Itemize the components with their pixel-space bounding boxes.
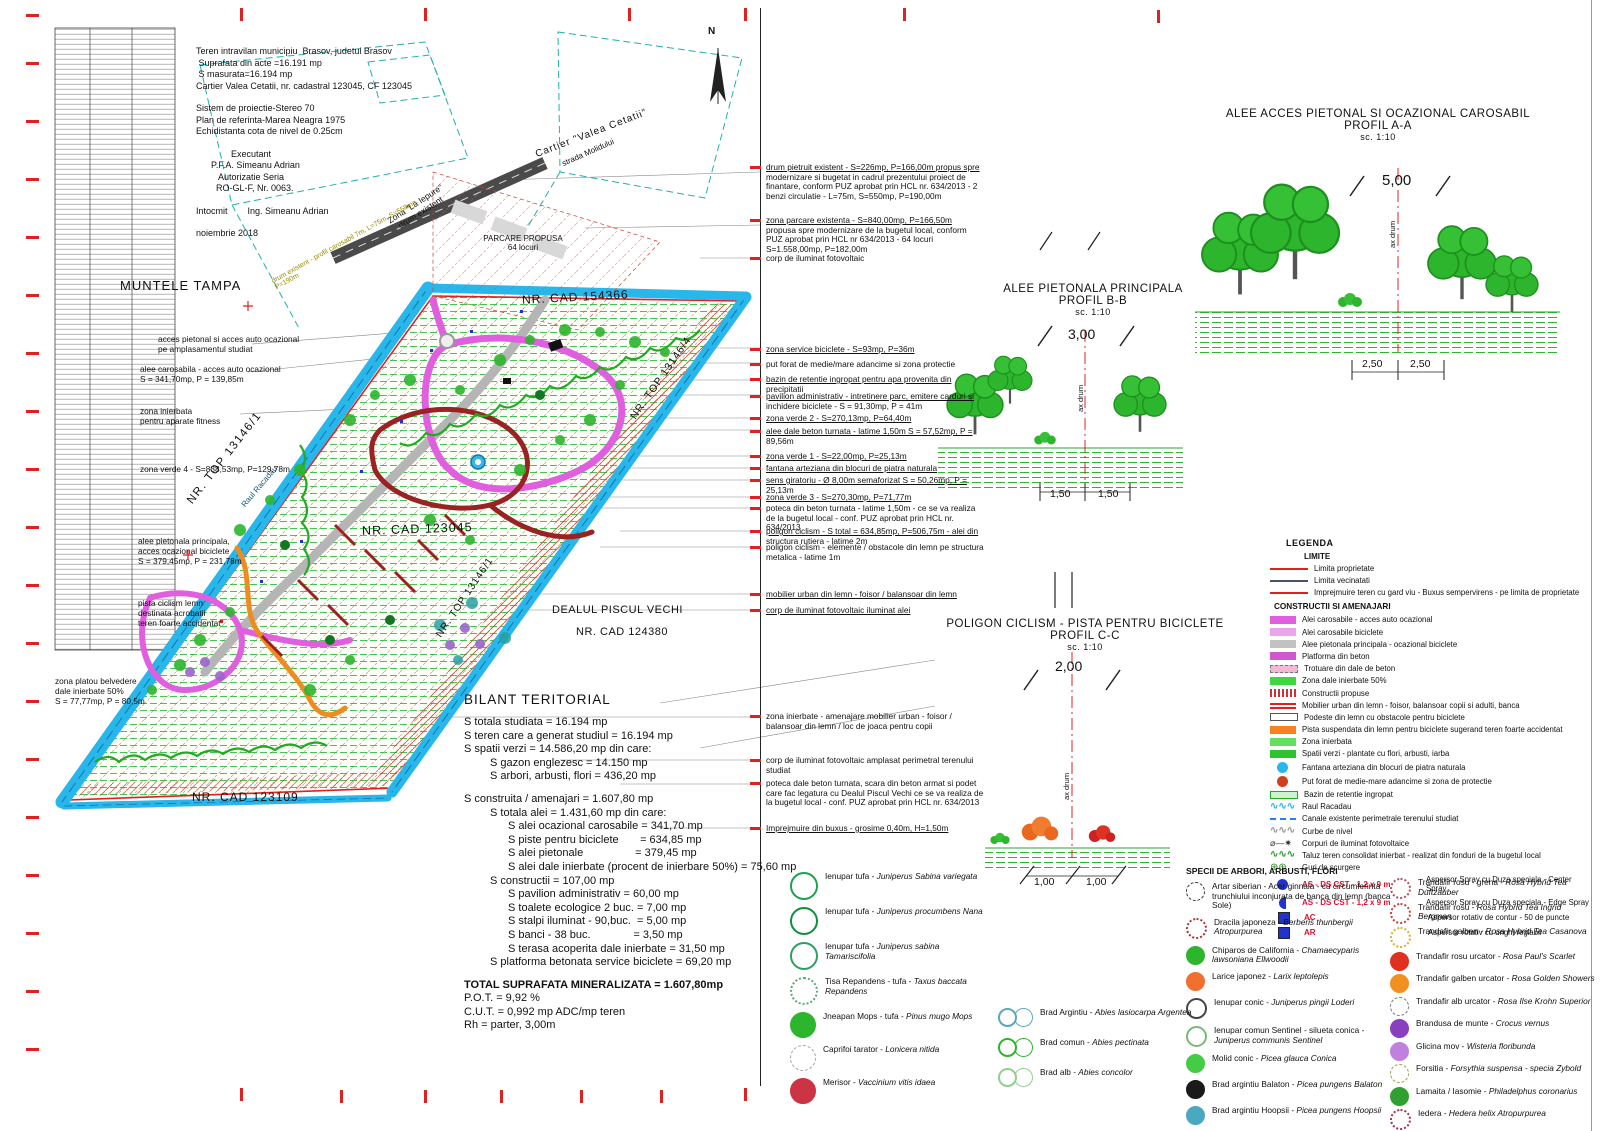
legend-swatch [1270, 713, 1298, 721]
bilant-line: S construita / amenajari = 1.607,80 mp [464, 793, 816, 807]
species-text: Brad Argintiu - Abies lasiocarpa Argente… [1040, 1008, 1191, 1018]
legend-row: Spatii verzi - plantate cu flori, arbust… [1270, 749, 1590, 758]
note-pavilion: pavilion administrativ - intretinere par… [766, 392, 984, 411]
note-fantana: fantana arteziana din blocuri de piatra … [766, 464, 984, 474]
legend-label: Constructii propuse [1302, 689, 1369, 698]
legend-label: Canale existente perimetrale terenului s… [1302, 814, 1458, 823]
species-glyph-icon [1186, 1106, 1205, 1125]
species-text: Molid conic - Picea glauca Conica [1212, 1054, 1337, 1064]
species-glyph-icon [1390, 1087, 1409, 1106]
species-row: Ienupar conic - Juniperus pingii Loderi [1186, 998, 1394, 1019]
legend-label: Zona dale inierbate 50% [1302, 676, 1387, 685]
species-text: Larice japonez - Larix leptolepis [1212, 972, 1329, 982]
legend-swatch [1270, 803, 1296, 811]
profile-cc-dim-top: 2,00 [1055, 658, 1082, 674]
label-muntele-tampa: MUNTELE TAMPA [120, 278, 241, 293]
info-line: Suprafata din acte =16.191 mp [196, 58, 486, 70]
legend-swatch [1270, 726, 1296, 734]
legend-row: Trotuare din dale de beton [1270, 664, 1590, 673]
info-line: Echidistanta cota de nivel de 0.25cm [196, 126, 486, 138]
toilets [503, 378, 511, 384]
left-label-platou-belvedere: zona platou belvedere dale inierbate 50%… [55, 676, 145, 706]
profile-aa-dim-top: 5,00 [1382, 172, 1411, 189]
bilant-line: C.U.T. = 0,992 mp ADC/mp teren [464, 1006, 816, 1020]
label-nr-cad-154366: NR. CAD 154366 [522, 287, 629, 307]
legend-row: Put forat de medie-mare adancime si zona… [1270, 776, 1590, 787]
species-glyph-icon [998, 1008, 1017, 1027]
label-nr-top-13146-4: NR. TOP 13146/4 [628, 334, 694, 421]
species-row: Larice japonez - Larix leptolepis [1186, 972, 1394, 991]
legend-swatch [1270, 689, 1296, 697]
note-zona-parcare: zona parcare existenta - S=840,00mp, P=1… [766, 216, 984, 254]
bilant-line: S gazon englezesc = 14.150 mp [490, 757, 816, 771]
species-glyph-icon [1186, 972, 1205, 991]
profile-cc-title2: PROFIL C-C [945, 630, 1225, 642]
legend-swatch [1270, 592, 1308, 594]
info-line: Cartier Valea Cetatii, nr. cadastral 123… [196, 81, 486, 93]
legend-label: Alei carosabile - acces auto ocazional [1302, 615, 1432, 624]
label-dealul-piscul-vechi: DEALUL PISCUL VECHI [552, 604, 683, 616]
note-alee-dale: alee dale beton turnata - latime 1,50m S… [766, 427, 984, 446]
left-label-alee-carosabila: alee carosabila - acces auto ocazional S… [140, 364, 281, 384]
species-text: Ienupar tufa - Juniperus sabina Tamarisc… [825, 942, 990, 961]
species-text: Ienupar conic - Juniperus pingii Loderi [1214, 998, 1354, 1008]
species-glyph-icon [1390, 1064, 1409, 1083]
species-row: Brad comun - Abies pectinata [998, 1038, 1198, 1057]
bilant-line: S constructii = 107,00 mp [490, 875, 816, 889]
legend-label: Alee pietonala principala - ocazional bi… [1302, 640, 1457, 649]
info-line: Executant [196, 149, 486, 161]
species-glyph-icon [1390, 1042, 1409, 1061]
pavilion [548, 339, 563, 352]
legend-label: Bazin de retentie ingropat [1304, 790, 1393, 799]
bilant-line: S spatii verzi = 14.586,20 mp din care: [464, 743, 816, 757]
bilant-line: S alei pietonale = 379,45 mp [508, 847, 816, 861]
site-plan-sheet: Teren intravilan municipiu Brasov, judet… [0, 0, 1600, 1131]
note-zona-verde-2: zona verde 2 - S=270,13mp, P=64,40m [766, 414, 984, 424]
note-zona-verde-3: zona verde 3 - S=270,30mp, P=71,77m [766, 493, 984, 503]
species-row: Artar siberian - Acer ginnala - cu circu… [1186, 882, 1394, 911]
note-poligon-obstacole: poligon ciclism - elemente / obstacole d… [766, 543, 984, 562]
species-row: Trandafir galben urcator - Rosa Golden S… [1390, 974, 1596, 993]
roundabout [440, 334, 454, 348]
profile-bb-title2: PROFIL B-B [958, 295, 1228, 307]
species-text: Forsitia - Forsythia suspensa - specia Z… [1416, 1064, 1581, 1074]
profile-cc-dim-left: 1,00 [1034, 876, 1054, 888]
legend-row: Mobilier urban din lemn - foisor, balans… [1270, 701, 1590, 710]
species-text: Glicina mov - Wisteria floribunda [1416, 1042, 1535, 1052]
info-line: Intocmit Ing. Simeanu Adrian [196, 206, 486, 218]
species-text: Trandafir alb urcator - Rosa Ilse Krohn … [1416, 997, 1590, 1007]
legend-label: Imprejmuire teren cu gard viu - Buxus se… [1314, 588, 1579, 597]
profile-aa-title2: PROFIL A-A [1178, 120, 1578, 132]
species-glyph-icon [1390, 878, 1411, 899]
left-label-acces: acces pietonal si acces auto ocazional p… [158, 334, 299, 354]
species-text: Trandafir rosu - Rosa Hybrid Tea Ingrid … [1418, 903, 1596, 922]
species-text: Brad argintiu Hoopsii - Picea pungens Ho… [1212, 1106, 1381, 1116]
label-nr-cad-124380: NR. CAD 124380 [576, 626, 668, 638]
species-glyph-icon [790, 942, 818, 970]
legend-label: Curbe de nivel [1302, 827, 1352, 836]
legend-swatch [1270, 652, 1296, 660]
species-text: Brad argintiu Balaton - Picea pungens Ba… [1212, 1080, 1382, 1090]
bilant-teritorial: BILANT TERITORIAL S totala studiata = 16… [464, 692, 816, 1033]
legend-row: Corpuri de iluminat fotovoltaice [1270, 839, 1590, 848]
legend-swatch [1270, 738, 1296, 746]
legend-swatch [1270, 839, 1296, 847]
legend-row: Zona dale inierbate 50% [1270, 676, 1590, 685]
species-text: Merisor - Vaccinium vitis idaea [823, 1078, 935, 1088]
profile-aa-drawing [1195, 168, 1560, 380]
profile-cc-title: POLIGON CICLISM - PISTA PENTRU BICICLETE… [945, 618, 1225, 652]
species-text: Ienupar comun Sentinel - silueta conica … [1214, 1026, 1394, 1045]
label-nr-cad-123109: NR. CAD 123109 [192, 790, 299, 804]
info-line: P.F.A. Simeanu Adrian [196, 160, 486, 172]
species-text: Iedera - Hedera helix Atropurpurea [1418, 1109, 1546, 1119]
legend-label: Raul Racadau [1302, 802, 1351, 811]
left-label-alee-pietonala: alee pietonala principala, acces ocazion… [138, 536, 242, 566]
bilant-line: S banci - 38 buc. = 3,50 mp [508, 929, 816, 943]
species-text: Dracila japoneza - Berberis thunbergii A… [1214, 918, 1394, 937]
legend-swatch [1270, 628, 1296, 636]
legend-row: Platforma din beton [1270, 652, 1590, 661]
species-text: Ienupar tufa - Juniperus Sabina variegat… [825, 872, 977, 882]
species-text: Caprifoi tarator - Lonicera nitida [823, 1045, 939, 1055]
fountain [471, 455, 485, 469]
species-row: Trandafir rosu - Rosa Hybrid Tea Ingrid … [1390, 903, 1596, 924]
species-row: Ienupar tufa - Juniperus Sabina variegat… [790, 872, 990, 900]
legend-swatch [1270, 616, 1296, 624]
info-line: Plan de referinta-Marea Neagra 1975 [196, 115, 486, 127]
species-row: Brad argintiu Balaton - Picea pungens Ba… [1186, 1080, 1394, 1099]
bilant-title: BILANT TERITORIAL [464, 692, 816, 707]
legend-row: Curbe de nivel [1270, 827, 1590, 836]
species-glyph-icon [790, 907, 818, 935]
note-mobilier-urban: mobilier urban din lemn - foisor / balan… [766, 590, 984, 600]
species-text: Trandafir galben urcator - Rosa Golden S… [1416, 974, 1595, 984]
species-row: Brandusa de munte - Crocus vernus [1390, 1019, 1596, 1038]
info-line: S masurata=16.194 mp [196, 69, 486, 81]
bilant-line: TOTAL SUPRAFATA MINERALIZATA = 1.607,80m… [464, 979, 816, 993]
species-glyph-icon [1390, 1109, 1411, 1130]
species-glyph-icon [790, 1045, 816, 1071]
species-row: Trandafir alb urcator - Rosa Ilse Krohn … [1390, 997, 1596, 1016]
legend-label: Trotuare din dale de beton [1304, 664, 1395, 673]
species-row: Dracila japoneza - Berberis thunbergii A… [1186, 918, 1394, 939]
left-label-zona-fitness: zona inierbata pentru aparate fitness [140, 406, 220, 426]
species-glyph-icon [790, 1012, 816, 1038]
species-text: Jneapan Mops - tufa - Pinus mugo Mops [823, 1012, 972, 1022]
species-row: Trandafir rosu - grena - Rosa Hybrid Tea… [1390, 878, 1596, 899]
legend-row: Bazin de retentie ingropat [1270, 790, 1590, 799]
species-row: Ienupar comun Sentinel - silueta conica … [1186, 1026, 1394, 1047]
north-arrow-icon [710, 48, 726, 104]
legend-label: Podeste din lemn cu obstacole pentru bic… [1304, 713, 1465, 722]
legend-row: Fantana arteziana din blocuri de piatra … [1270, 762, 1590, 773]
species-row: Trandafir rosu urcator - Rosa Paul's Sca… [1390, 952, 1596, 971]
species-row: Brad Argintiu - Abies lasiocarpa Argente… [998, 1008, 1198, 1027]
species-row: Brad argintiu Hoopsii - Picea pungens Ho… [1186, 1106, 1394, 1125]
info-line: noiembrie 2018 [196, 228, 486, 240]
note-zona-service: zona service biciclete - S=93mp, P=36m [766, 345, 984, 355]
legend-swatch [1270, 580, 1308, 582]
legend-row: Alei carosabile - acces auto ocazional [1270, 615, 1590, 624]
info-line [196, 138, 486, 149]
species-title: SPECII DE ARBORI, ARBUSTI, FLORI [1186, 866, 1338, 876]
legend-row: Raul Racadau [1270, 802, 1590, 811]
profile-cc-title1: POLIGON CICLISM - PISTA PENTRU BICICLETE [945, 618, 1225, 630]
profile-cc-axis: ax drum [1062, 773, 1071, 800]
species-glyph-icon [1390, 997, 1409, 1016]
bilant-line: S toalete ecologice 2 buc. = 7,00 mp [508, 902, 816, 916]
species-text: Brad alb - Abies concolor [1040, 1068, 1133, 1078]
bilant-line: S alei ocazional carosabile = 341,70 mp [508, 820, 816, 834]
species-row: Tisa Repandens - tufa - Taxus baccata Re… [790, 977, 990, 1005]
alleys [142, 300, 622, 715]
species-glyph-icon [1186, 946, 1205, 965]
legend-swatch [1270, 827, 1296, 835]
species-glyph-icon [790, 977, 818, 1005]
legend-swatch [1277, 776, 1288, 787]
bilant-line: S stalpi iluminat - 90,buc. = 5,00 mp [508, 915, 816, 929]
species-glyph-icon [1390, 903, 1411, 924]
species-row: Ienupar tufa - Juniperus sabina Tamarisc… [790, 942, 990, 970]
legend-swatch [1270, 818, 1296, 820]
species-row: Trandafir galben - Rosa Hybrid Tea Casan… [1390, 927, 1596, 948]
bilant-line: Rh = parter, 3,00m [464, 1019, 816, 1033]
species-shrubs-left: Ienupar tufa - Juniperus Sabina variegat… [790, 872, 990, 1111]
left-label-pista-ciclism: pista ciclism lemn destinata acrobatii t… [138, 598, 221, 628]
species-text: Brad comun - Abies pectinata [1040, 1038, 1149, 1048]
profile-bb-dim-left: 1,50 [1050, 488, 1070, 500]
label-parcare-propusa: PARCARE PROPUSA 64 locuri [478, 234, 568, 252]
legend-constructii-title: CONSTRUCTII SI AMENAJARI [1274, 602, 1590, 611]
species-glyph-icon [1390, 952, 1409, 971]
legend-swatch [1270, 851, 1296, 859]
legend-row: Pista suspendata din lemn pentru bicicle… [1270, 725, 1590, 734]
profile-aa-dim-left: 2,50 [1362, 358, 1382, 370]
bilant-line: S teren care a generat studiul = 16.194 … [464, 730, 816, 744]
legend-limite-title: LIMITE [1304, 552, 1590, 561]
info-line: Autorizatie Seria [196, 172, 486, 184]
bilant-line: S pavilion administrativ = 60,00 mp [508, 888, 816, 902]
legend-label: Pista suspendata din lemn pentru bicicle… [1302, 725, 1563, 734]
legend-label: Platforma din beton [1302, 652, 1370, 661]
species-row: Glicina mov - Wisteria floribunda [1390, 1042, 1596, 1061]
legend-row: Podeste din lemn cu obstacole pentru bic… [1270, 713, 1590, 722]
info-line: Sistem de proiectie-Stereo 70 [196, 103, 486, 115]
profile-aa-dim-right: 2,50 [1410, 358, 1430, 370]
species-glyph-icon [998, 1038, 1017, 1057]
species-firs-center: Brad Argintiu - Abies lasiocarpa Argente… [998, 1008, 1198, 1098]
legend-label: Put forat de medie-mare adancime si zona… [1302, 777, 1492, 786]
profile-cc-scale: sc. 1:10 [945, 642, 1225, 652]
profile-bb-axis: ax drum [1076, 385, 1085, 412]
profile-aa-title1: ALEE ACCES PIETONAL SI OCAZIONAL CAROSAB… [1178, 108, 1578, 120]
bilant-line: S totala alei = 1.431,60 mp din care: [490, 807, 816, 821]
species-text: Ienupar tufa - Juniperus procumbens Nana [825, 907, 983, 917]
species-glyph-icon [790, 1078, 816, 1104]
species-text: Lamaita / Iasomie - Philadelphus coronar… [1416, 1087, 1577, 1097]
cadastral-info-block: Teren intravilan municipiu Brasov, judet… [196, 46, 486, 240]
profile-cc-dim-right: 1,00 [1086, 876, 1106, 888]
left-label-zona-verde-4: zona verde 4 - S=838,53mp, P=129,78m [140, 464, 290, 474]
species-glyph-icon [1186, 918, 1207, 939]
legend-label: Limita vecinatati [1314, 576, 1370, 585]
species-flowers-right: Trandafir rosu - grena - Rosa Hybrid Tea… [1390, 878, 1596, 1131]
info-line: Teren intravilan municipiu Brasov, judet… [196, 46, 486, 58]
species-glyph-icon [998, 1068, 1017, 1087]
species-row: Ienupar tufa - Juniperus procumbens Nana [790, 907, 990, 935]
legend-limite-row: Imprejmuire teren cu gard viu - Buxus se… [1270, 588, 1590, 597]
legend-label: Mobilier urban din lemn - foisor, balans… [1302, 701, 1520, 710]
species-text: Trandafir rosu urcator - Rosa Paul's Sca… [1416, 952, 1575, 962]
profile-aa-scale: sc. 1:10 [1178, 132, 1578, 142]
legend-swatch [1277, 762, 1288, 773]
species-row: Chiparos de California - Chamaecyparis l… [1186, 946, 1394, 965]
profile-bb-title1: ALEE PIETONALA PRINCIPALA [958, 283, 1228, 295]
legend-label: Corpuri de iluminat fotovoltaice [1302, 839, 1409, 848]
legend-label: Spatii verzi - plantate cu flori, arbust… [1302, 749, 1449, 758]
note-corp-iluminat: corp de iluminat fotovoltaic [766, 254, 984, 264]
profile-bb-dim-right: 1,50 [1098, 488, 1118, 500]
legend-swatch [1270, 750, 1296, 758]
legend-label: Taluz teren consolidat inierbat - realiz… [1302, 851, 1541, 860]
bilant-line: S piste pentru biciclete = 634,85 mp [508, 834, 816, 848]
bilant-line: S arbori, arbusti, flori = 436,20 mp [490, 770, 816, 784]
legend-swatch [1270, 640, 1296, 648]
species-row: Merisor - Vaccinium vitis idaea [790, 1078, 990, 1104]
legend-limite-row: Limita proprietate [1270, 564, 1590, 573]
species-trees-main: Artar siberian - Acer ginnala - cu circu… [1186, 882, 1394, 1131]
info-line [196, 92, 486, 103]
bilant-line: S platforma betonata service biciclete =… [490, 956, 816, 970]
legend-swatch [1270, 568, 1308, 570]
legend-label: Zona inierbata [1302, 737, 1352, 746]
note-zona-verde-1: zona verde 1 - S=22,00mp, P=25,13m [766, 452, 984, 462]
species-text: Chiparos de California - Chamaecyparis l… [1212, 946, 1394, 965]
legend-title: LEGENDA [1286, 538, 1590, 548]
legend-label: Limita proprietate [1314, 564, 1374, 573]
species-row: Jneapan Mops - tufa - Pinus mugo Mops [790, 1012, 990, 1038]
species-text: Artar siberian - Acer ginnala - cu circu… [1212, 882, 1394, 911]
label-nr-cad-123045: NR. CAD 123045 [362, 520, 473, 538]
legend-row: Constructii propuse [1270, 689, 1590, 698]
bilant-line: S terasa acoperita dale inierbate = 31,5… [508, 943, 816, 957]
legend-row: Alee pietonala principala - ocazional bi… [1270, 640, 1590, 649]
legend-row: Taluz teren consolidat inierbat - realiz… [1270, 851, 1590, 860]
species-row: Iedera - Hedera helix Atropurpurea [1390, 1109, 1596, 1130]
legend-swatch [1270, 665, 1298, 673]
species-row: Forsitia - Forsythia suspensa - specia Z… [1390, 1064, 1596, 1083]
species-row: Lamaita / Iasomie - Philadelphus coronar… [1390, 1087, 1596, 1106]
profile-aa-title: ALEE ACCES PIETONAL SI OCAZIONAL CAROSAB… [1178, 108, 1578, 142]
profile-bb-scale: sc. 1:10 [958, 307, 1228, 317]
bilant-line: S alei dale inierbate (procent de inierb… [508, 861, 816, 875]
species-text: Trandafir galben - Rosa Hybrid Tea Casan… [1418, 927, 1587, 937]
legend-swatch [1270, 701, 1296, 709]
species-row: Brad alb - Abies concolor [998, 1068, 1198, 1087]
profile-aa-axis: ax drum [1388, 221, 1397, 248]
bilant-line: P.O.T. = 9,92 % [464, 992, 816, 1006]
species-text: Tisa Repandens - tufa - Taxus baccata Re… [825, 977, 990, 996]
label-north: N [708, 26, 715, 37]
species-glyph-icon [1390, 974, 1409, 993]
species-glyph-icon [1186, 882, 1205, 901]
species-glyph-icon [790, 872, 818, 900]
species-text: Trandafir rosu - grena - Rosa Hybrid Tea… [1418, 878, 1596, 897]
legend-row: Zona inierbata [1270, 737, 1590, 746]
legend-row: Alei carosabile biciclete [1270, 628, 1590, 637]
legend-label: Fantana arteziana din blocuri de piatra … [1302, 763, 1465, 772]
info-line [196, 217, 486, 228]
note-drum-pietruit: drum pietruit existent - S=226mp, P=166,… [766, 163, 984, 201]
legend-row: Canale existente perimetrale terenului s… [1270, 814, 1590, 823]
legend-label: Alei carosabile biciclete [1302, 628, 1383, 637]
species-glyph-icon [1390, 1019, 1409, 1038]
species-glyph-icon [1390, 927, 1411, 948]
legend-limite-row: Limita vecinatati [1270, 576, 1590, 585]
profile-bb-title: ALEE PIETONALA PRINCIPALA PROFIL B-B sc.… [958, 283, 1228, 317]
species-text: Brandusa de munte - Crocus vernus [1416, 1019, 1549, 1029]
species-row: Molid conic - Picea glauca Conica [1186, 1054, 1394, 1073]
legend-swatch [1270, 791, 1298, 799]
legend-swatch [1270, 677, 1296, 685]
bilant-line: S totala studiata = 16.194 mp [464, 716, 816, 730]
note-put-forat: put forat de medie/mare adancime si zona… [766, 360, 984, 370]
label-nr-top-13146-1b: NR. TOP 13146/1 [434, 555, 496, 639]
profile-bb-dim-top: 3,00 [1068, 326, 1095, 342]
note-iluminat-alei: corp de iluminat fotovoltaic iluminat al… [766, 606, 984, 616]
species-row: Caprifoi tarator - Lonicera nitida [790, 1045, 990, 1071]
